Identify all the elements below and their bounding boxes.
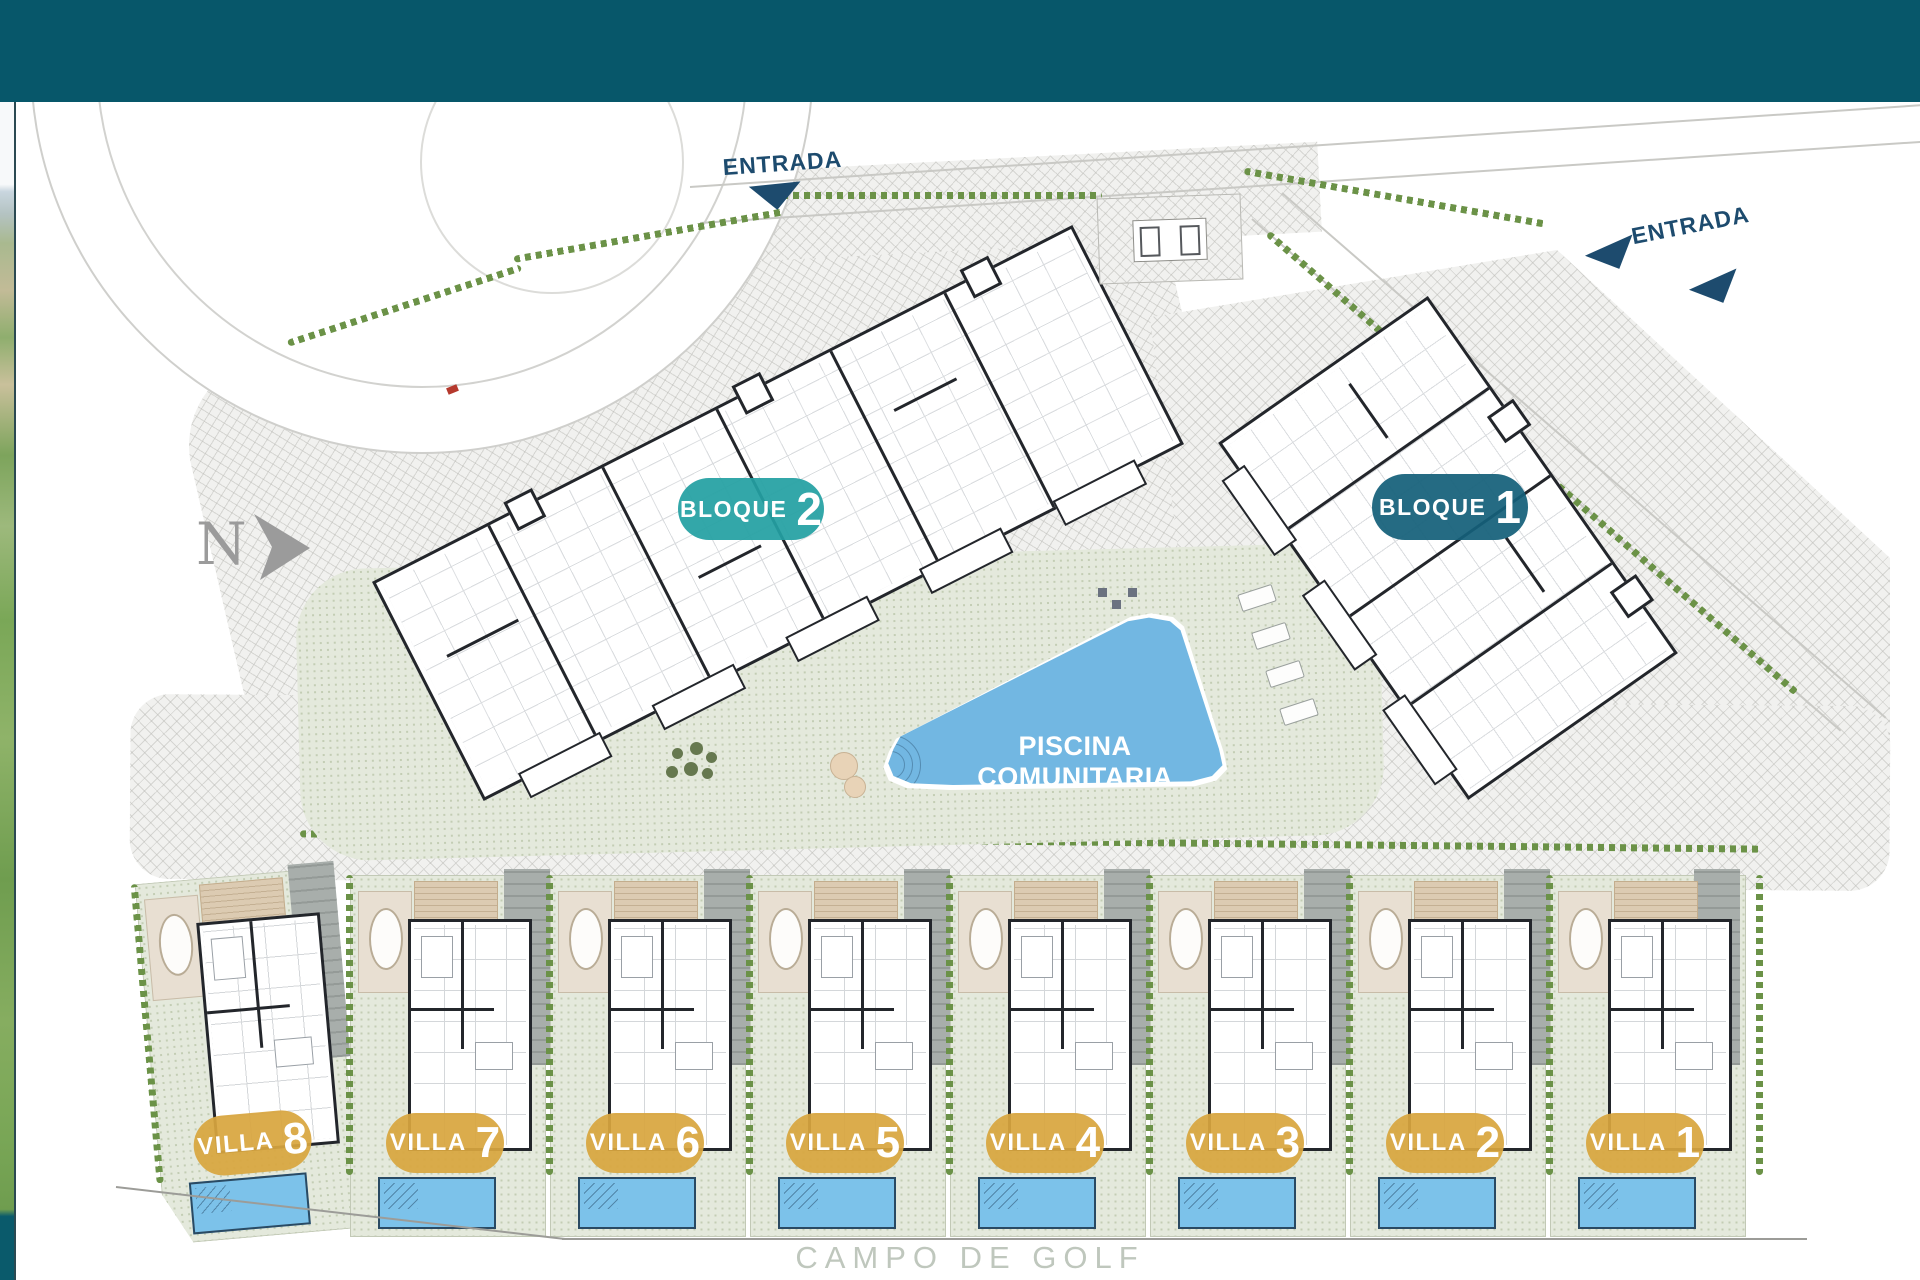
- tub-icon: [1369, 908, 1403, 970]
- hedge: [1346, 875, 1353, 1175]
- hedge: [946, 875, 953, 1175]
- pool-furniture-icon: [1098, 588, 1107, 597]
- villa-terrace: [558, 891, 612, 993]
- villa-number: 2: [1476, 1121, 1500, 1165]
- pool-label: PISCINA COMUNITARIA: [930, 731, 1220, 793]
- bush-icon: [666, 766, 678, 778]
- villa-label: VILLA: [790, 1129, 867, 1157]
- villa-pool: [1378, 1177, 1496, 1229]
- villa-plot: VILLA 4: [950, 875, 1146, 1237]
- villa-pool: [1578, 1177, 1696, 1229]
- block-1-pill[interactable]: BLOQUE 1: [1372, 474, 1528, 540]
- villa-plot: VILLA 2: [1350, 875, 1546, 1237]
- villa-pool: [578, 1177, 696, 1229]
- hedge: [782, 192, 1102, 199]
- villa-plot: VILLA 3: [1150, 875, 1346, 1237]
- villa-terrace: [958, 891, 1012, 993]
- hedge: [1756, 875, 1763, 1175]
- entrance-arrow-icon: [749, 181, 803, 212]
- villa-plot: VILLA 1: [1550, 875, 1746, 1237]
- villa-label: VILLA: [590, 1129, 667, 1157]
- hedge: [746, 875, 753, 1175]
- villa-3-pill[interactable]: VILLA 3: [1186, 1113, 1304, 1173]
- villa-label: VILLA: [1590, 1129, 1667, 1157]
- villa-2-pill[interactable]: VILLA 2: [1386, 1113, 1504, 1173]
- entrance-arrow-icon: [1689, 269, 1747, 314]
- tub-icon: [156, 912, 195, 977]
- hedge: [1146, 875, 1153, 1175]
- villa-terrace: [758, 891, 812, 993]
- villa-number: 7: [476, 1121, 500, 1165]
- north-label: N: [196, 510, 247, 578]
- tub-icon: [1569, 908, 1603, 970]
- villa-4-pill[interactable]: VILLA 4: [986, 1113, 1104, 1173]
- villa-terrace: [1158, 891, 1212, 993]
- tub-icon: [769, 908, 803, 970]
- block-2-pill[interactable]: BLOQUE 2: [678, 478, 824, 540]
- villa-plot: VILLA 5: [750, 875, 946, 1237]
- tub-icon: [369, 908, 403, 970]
- villa-label: VILLA: [1390, 1129, 1467, 1157]
- block-2-label: BLOQUE: [680, 496, 787, 523]
- villa-label: VILLA: [1190, 1129, 1267, 1157]
- tub-icon: [569, 908, 603, 970]
- entrance-plaza: [1097, 194, 1244, 285]
- pool-furniture-icon: [1128, 588, 1137, 597]
- bush-icon: [672, 748, 683, 759]
- villa-terrace: [1358, 891, 1412, 993]
- bush-icon: [702, 768, 713, 779]
- villa-number: 6: [676, 1121, 700, 1165]
- bush-icon: [684, 762, 698, 776]
- block-2-number: 2: [796, 486, 822, 532]
- north-arrow-icon: [248, 514, 310, 580]
- golf-photo-strip: [0, 102, 16, 1280]
- villa-1-pill[interactable]: VILLA 1: [1586, 1113, 1704, 1173]
- villa-number: 8: [281, 1116, 309, 1162]
- villa-7-pill[interactable]: VILLA 7: [386, 1113, 504, 1173]
- villa-6-pill[interactable]: VILLA 6: [586, 1113, 704, 1173]
- villa-pool: [778, 1177, 896, 1229]
- block-1-label: BLOQUE: [1379, 494, 1486, 521]
- pool-furniture-icon: [1112, 600, 1121, 609]
- villa-plot: VILLA 8: [135, 867, 362, 1245]
- villa-pool: [1178, 1177, 1296, 1229]
- plaza-structure: [1132, 218, 1207, 263]
- hedge: [1546, 875, 1553, 1175]
- block-1-number: 1: [1495, 484, 1521, 530]
- hedge: [346, 875, 353, 1175]
- villa-plot: VILLA 7: [350, 875, 546, 1237]
- villa-terrace: [358, 891, 412, 993]
- villa-label: VILLA: [196, 1127, 275, 1162]
- villa-number: 3: [1276, 1121, 1300, 1165]
- villa-plot: VILLA 6: [550, 875, 746, 1237]
- golf-course-label: CAMPO DE GOLF: [680, 1240, 1260, 1276]
- villa-pool: [378, 1177, 496, 1229]
- villa-label: VILLA: [990, 1129, 1067, 1157]
- villa-5-pill[interactable]: VILLA 5: [786, 1113, 904, 1173]
- villa-number: 5: [876, 1121, 900, 1165]
- garden-ornament-icon: [844, 776, 866, 798]
- site-plan: PISCINA COMUNITARIA ENTRADA ENTRADA BLOQ…: [0, 0, 1920, 1280]
- villa-terrace: [144, 895, 207, 1001]
- bush-icon: [690, 742, 703, 755]
- villa-terrace: [1558, 891, 1612, 993]
- tub-icon: [1169, 908, 1203, 970]
- villa-pool: [978, 1177, 1096, 1229]
- villa-label: VILLA: [390, 1129, 467, 1157]
- tub-icon: [969, 908, 1003, 970]
- hedge: [546, 875, 553, 1175]
- header-bar: [0, 0, 1920, 102]
- villa-number: 1: [1676, 1121, 1700, 1165]
- north-indicator: N: [196, 508, 316, 588]
- bush-icon: [706, 752, 717, 763]
- villa-number: 4: [1076, 1121, 1100, 1165]
